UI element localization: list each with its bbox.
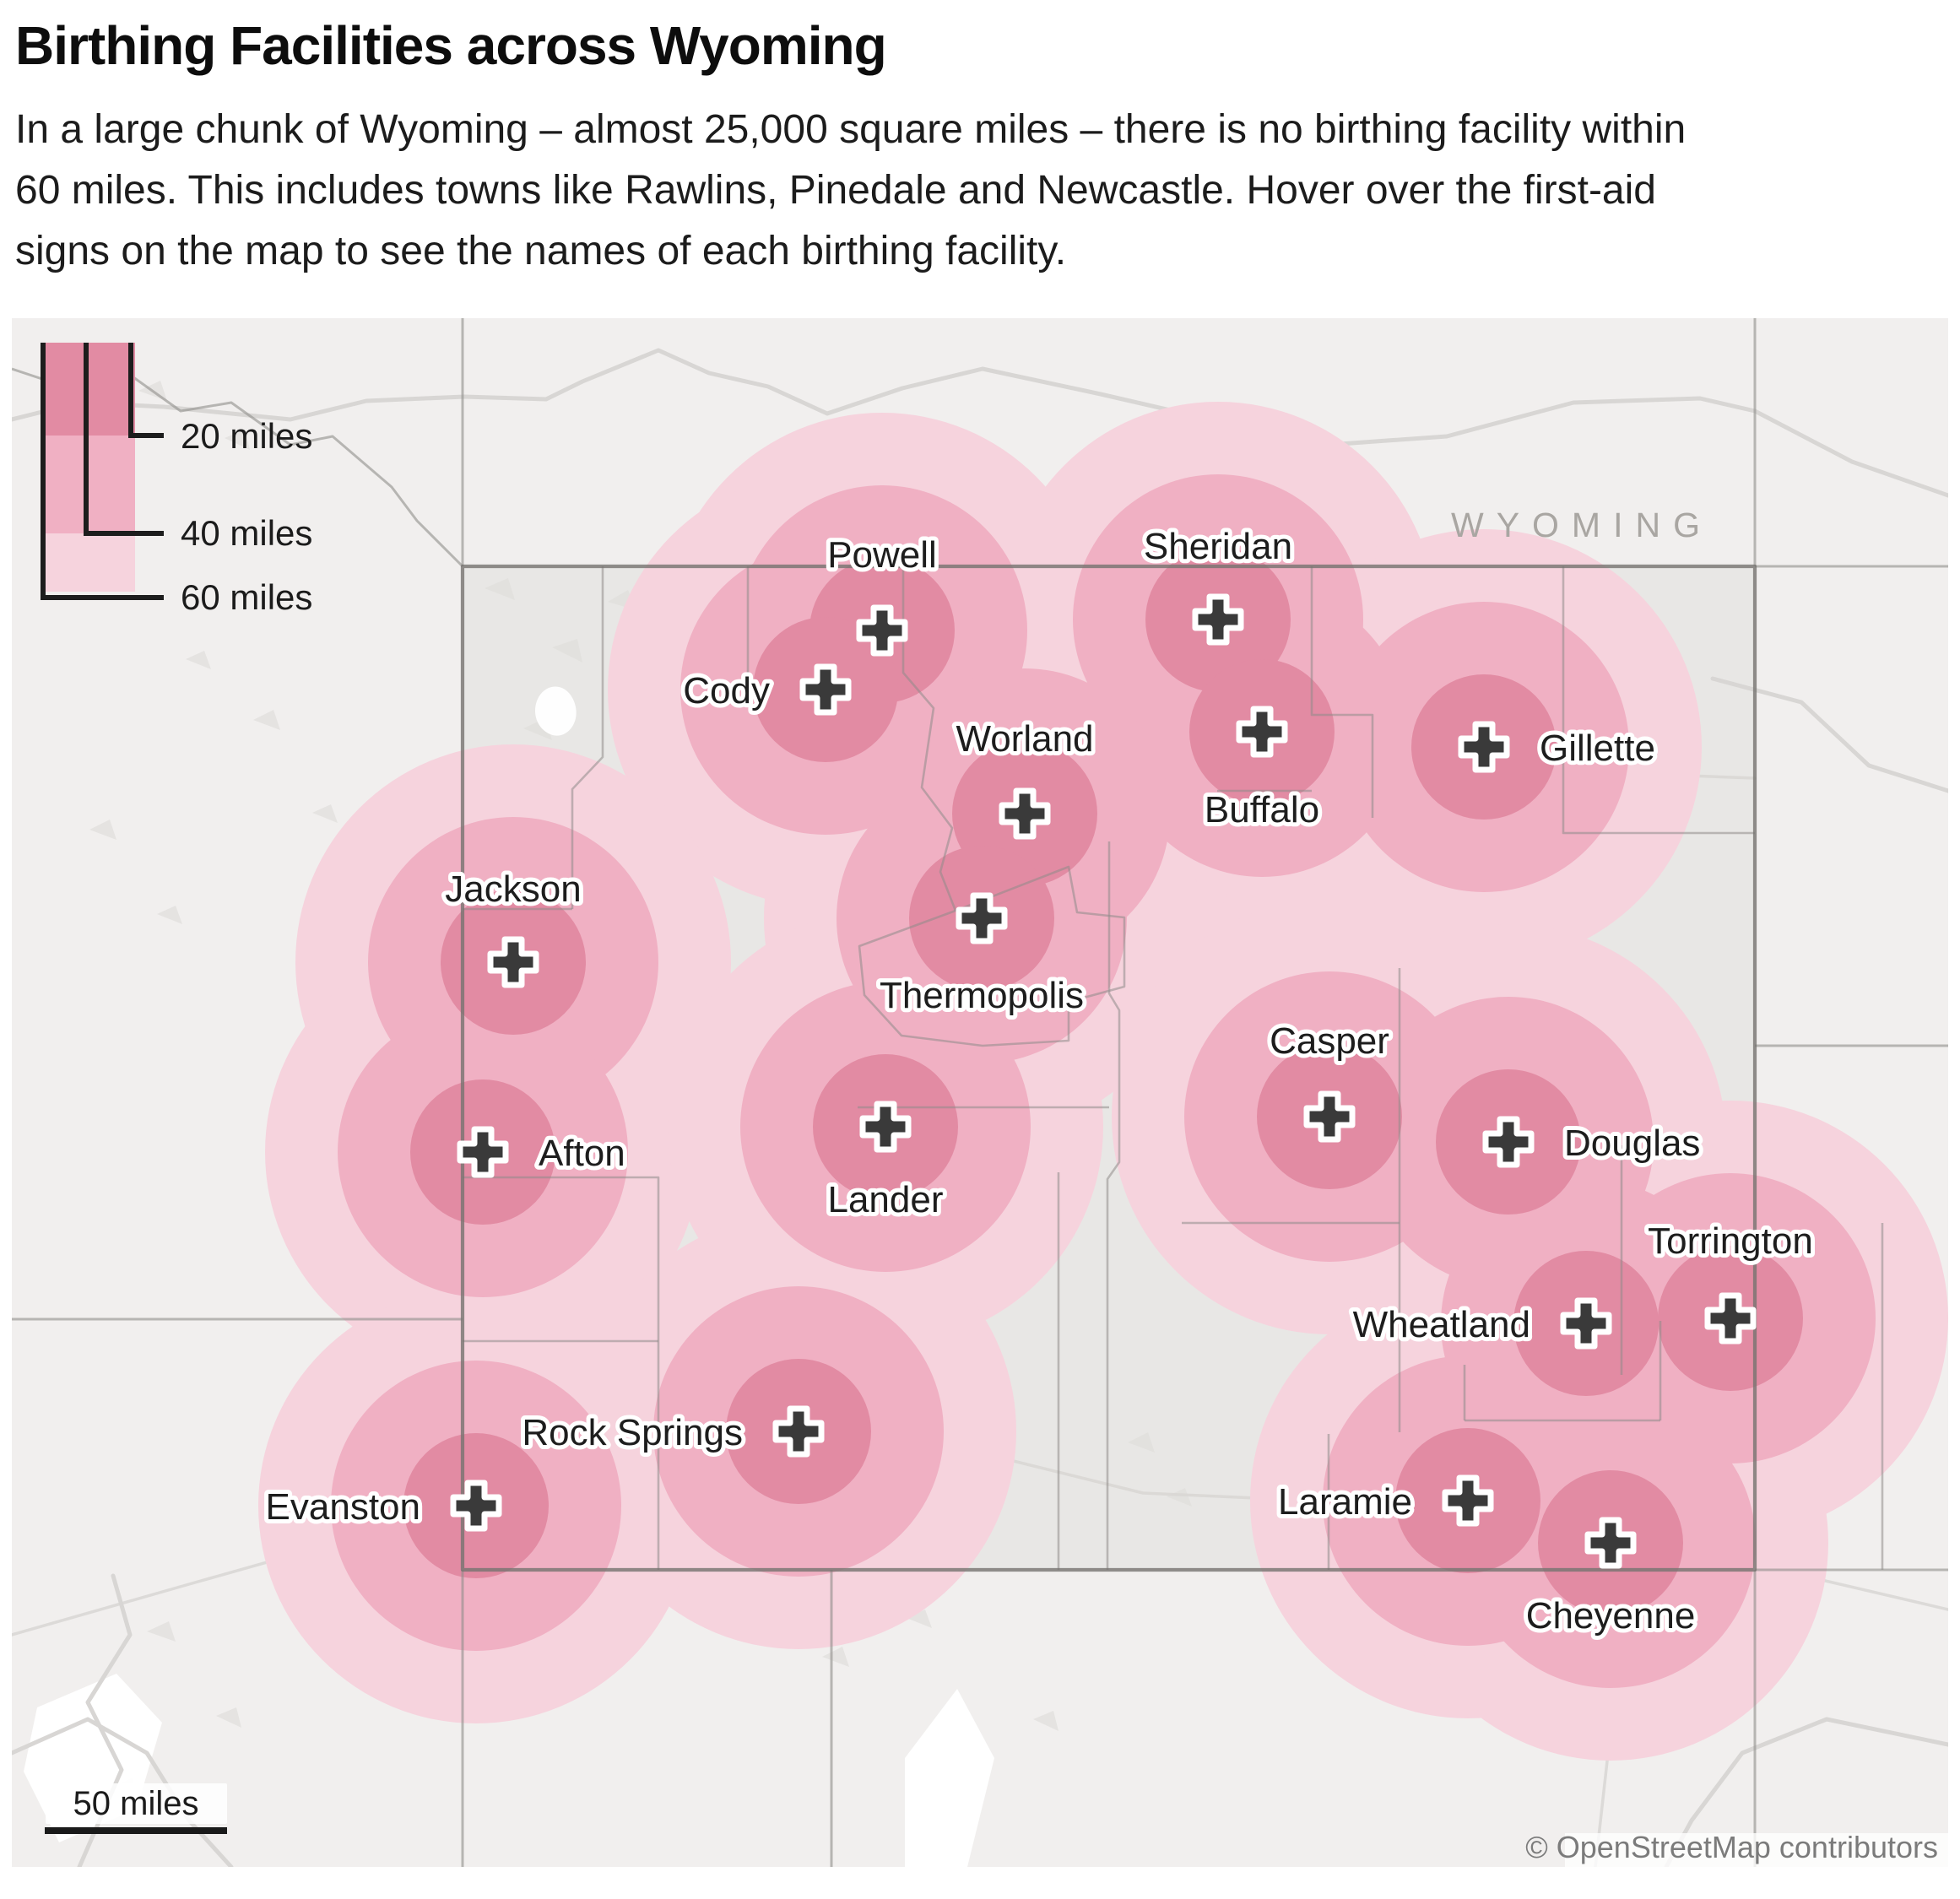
- facility-label-douglas: Douglas: [1564, 1123, 1700, 1164]
- facility-label-worland: Worland: [956, 718, 1093, 760]
- legend-label-40: 40 miles: [181, 513, 312, 553]
- facility-label-cody: Cody: [683, 670, 770, 711]
- facility-label-thermopolis: Thermopolis: [880, 975, 1084, 1016]
- page-title: Birthing Facilities across Wyoming: [15, 15, 1946, 78]
- legend-band-60: [41, 533, 135, 592]
- facility-label-afton: Afton: [539, 1133, 625, 1174]
- subtitle-line-1: In a large chunk of Wyoming – almost 25,…: [15, 100, 1946, 160]
- wyoming-map-svg: WYOMING 20 miles 40 miles 60 miles Powel…: [12, 318, 1948, 1867]
- scale-bar-rule: [45, 1827, 227, 1834]
- facility-label-lander: Lander: [827, 1179, 943, 1220]
- legend-label-20: 20 miles: [181, 416, 312, 456]
- subtitle-line-3: signs on the map to see the names of eac…: [15, 221, 1946, 282]
- facility-label-rock-springs: Rock Springs: [522, 1412, 743, 1453]
- facility-label-sheridan: Sheridan: [1144, 526, 1292, 567]
- header: Birthing Facilities across Wyoming In a …: [0, 0, 1960, 318]
- legend-label-60: 60 miles: [181, 577, 312, 617]
- facility-label-jackson: Jackson: [445, 868, 581, 910]
- facility-label-evanston: Evanston: [266, 1486, 420, 1528]
- map-legend: 20 miles 40 miles 60 miles: [41, 343, 312, 617]
- facility-label-cheyenne: Cheyenne: [1526, 1595, 1696, 1637]
- facility-label-casper: Casper: [1270, 1020, 1389, 1062]
- scale-bar-label: 50 miles: [73, 1785, 199, 1822]
- wyoming-map: WYOMING 20 miles 40 miles 60 miles Powel…: [12, 318, 1948, 1867]
- facility-label-buffalo: Buffalo: [1205, 789, 1319, 830]
- facility-label-powell: Powell: [827, 534, 937, 576]
- map-attribution: © OpenStreetMap contributors: [1525, 1830, 1948, 1867]
- attribution-label: © OpenStreetMap contributors: [1525, 1830, 1938, 1864]
- facility-label-laramie: Laramie: [1278, 1481, 1412, 1523]
- utah-valley-white: [905, 1689, 994, 1867]
- state-name-label: WYOMING: [1451, 506, 1713, 544]
- page-subtitle: In a large chunk of Wyoming – almost 25,…: [15, 100, 1946, 282]
- facility-label-wheatland: Wheatland: [1353, 1304, 1530, 1345]
- subtitle-line-2: 60 miles. This includes towns like Rawli…: [15, 160, 1946, 221]
- facility-label-torrington: Torrington: [1648, 1220, 1813, 1262]
- facility-label-gillette: Gillette: [1540, 728, 1655, 769]
